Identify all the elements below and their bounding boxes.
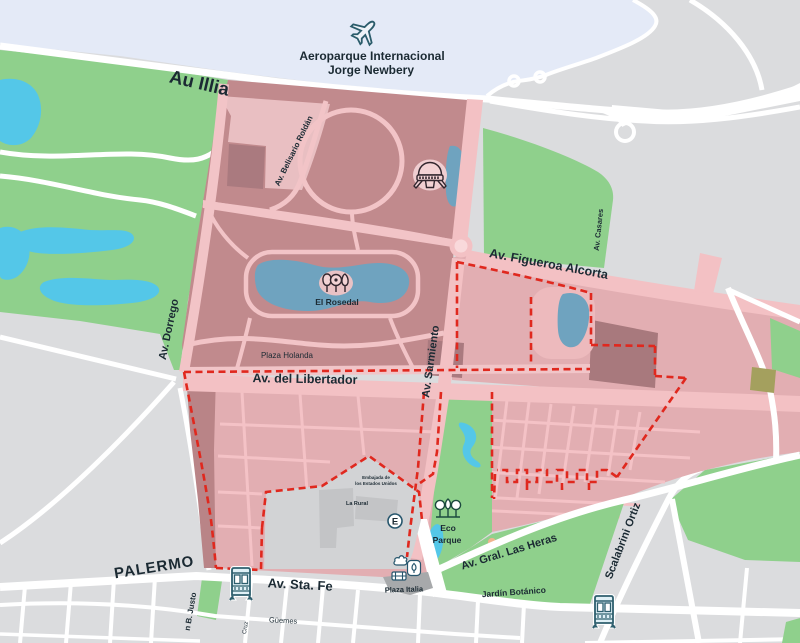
svg-text:Jorge Newbery: Jorge Newbery [328, 63, 414, 77]
svg-text:Plaza Holanda: Plaza Holanda [261, 351, 314, 360]
svg-text:Plaza Italia: Plaza Italia [385, 584, 424, 594]
svg-text:Av. del Libertador: Av. del Libertador [253, 371, 358, 387]
svg-text:Güemes: Güemes [269, 615, 298, 625]
svg-text:E: E [392, 517, 398, 528]
svg-text:Parque: Parque [433, 535, 462, 545]
svg-text:El Rosedal: El Rosedal [315, 297, 358, 307]
svg-text:los Estados Unidos: los Estados Unidos [355, 481, 397, 486]
svg-text:Embajada de: Embajada de [362, 475, 390, 480]
svg-text:Eco: Eco [440, 523, 456, 533]
svg-text:Aeroparque Internacional: Aeroparque Internacional [299, 49, 444, 63]
svg-text:La Rural: La Rural [346, 501, 368, 507]
